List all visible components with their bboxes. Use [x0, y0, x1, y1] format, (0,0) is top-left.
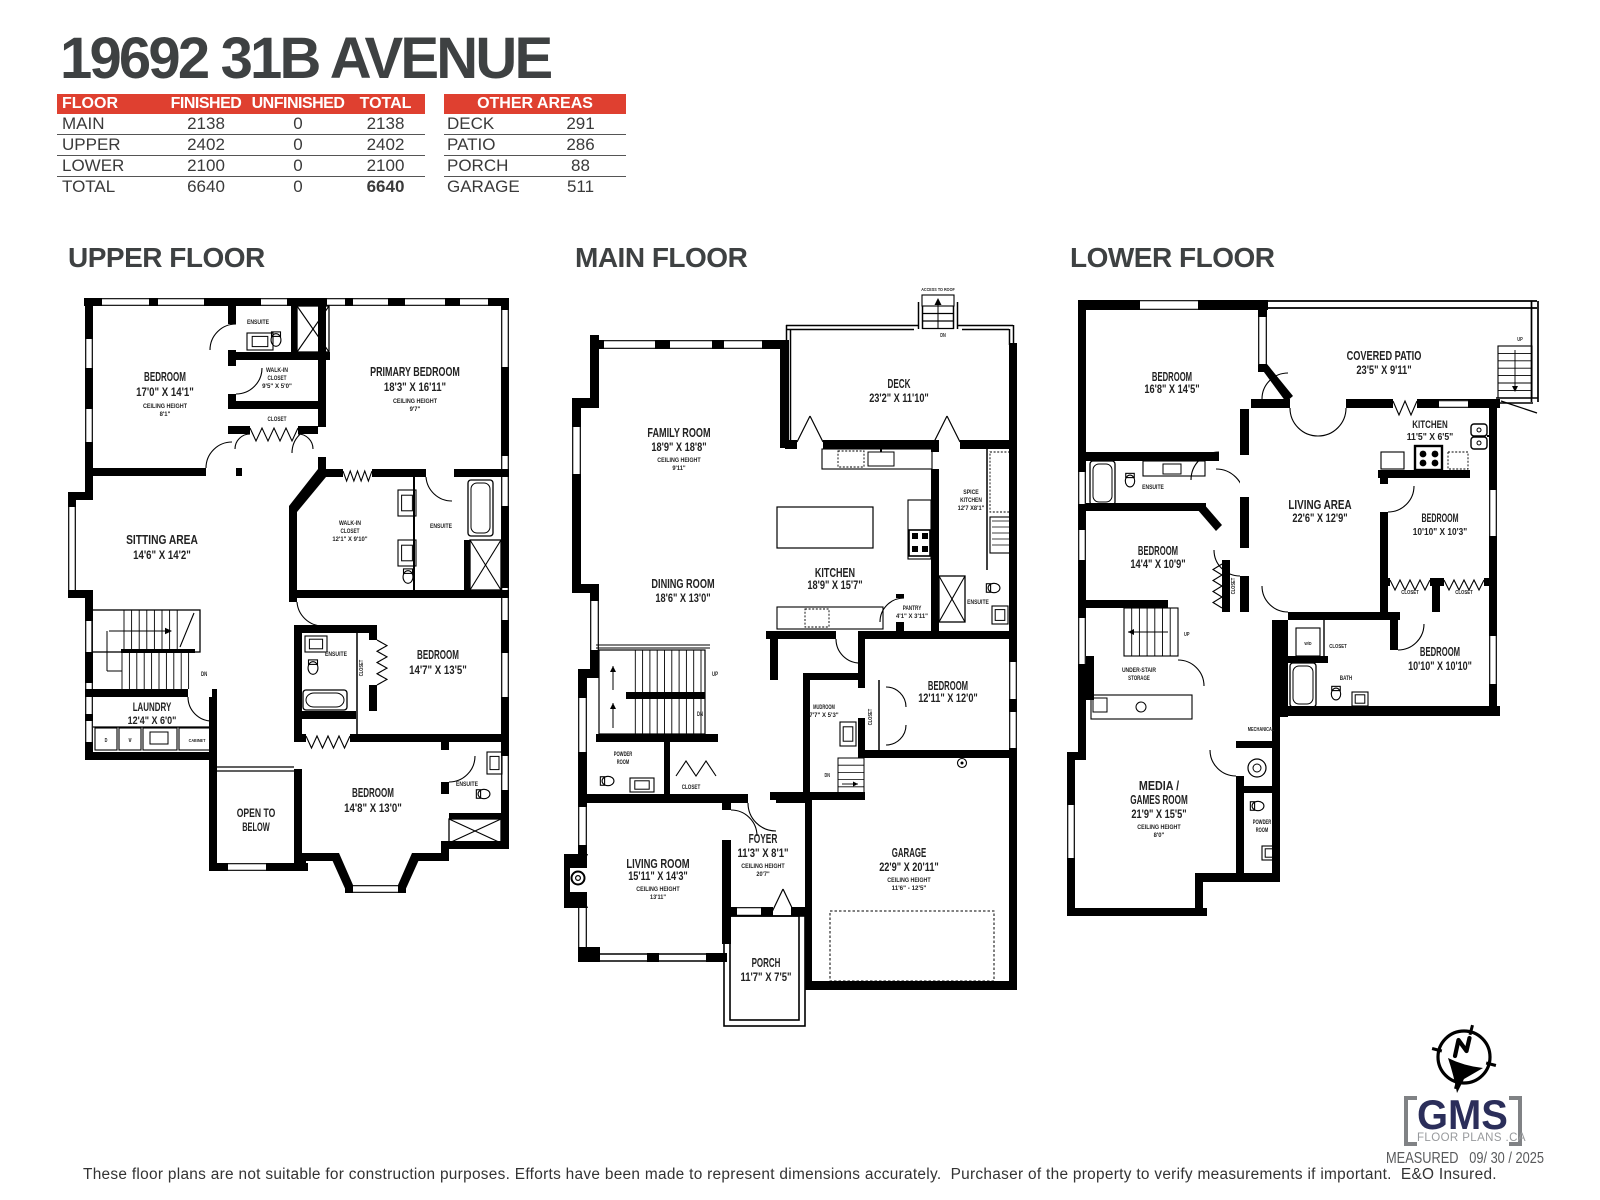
svg-text:CEILING HEIGHT: CEILING HEIGHT — [657, 457, 701, 464]
svg-text:LIVING AREA: LIVING AREA — [1288, 498, 1351, 512]
svg-text:W: W — [129, 738, 132, 744]
svg-text:DN: DN — [697, 712, 703, 718]
svg-text:D: D — [105, 738, 108, 744]
svg-text:13'11": 13'11" — [650, 894, 666, 901]
svg-text:BEDROOM: BEDROOM — [1138, 544, 1178, 558]
svg-text:CLOSET: CLOSET — [341, 528, 360, 535]
svg-text:FOYER: FOYER — [749, 832, 778, 846]
svg-text:CLOSET: CLOSET — [268, 416, 287, 423]
svg-text:PRIMARY BEDROOM: PRIMARY BEDROOM — [370, 364, 460, 379]
svg-text:CABINET: CABINET — [189, 738, 206, 744]
svg-text:18'6" X 13'0": 18'6" X 13'0" — [655, 593, 710, 605]
svg-text:12'7 X8'1": 12'7 X8'1" — [958, 505, 985, 512]
svg-text:PORCH: PORCH — [752, 956, 781, 970]
svg-text:14'7" X 13'5": 14'7" X 13'5" — [409, 663, 467, 677]
svg-text:DINING ROOM: DINING ROOM — [651, 577, 714, 591]
svg-text:BEDROOM: BEDROOM — [1152, 370, 1192, 384]
svg-text:MECHANICAL: MECHANICAL — [1248, 727, 1275, 733]
svg-text:12'4" X 6'0": 12'4" X 6'0" — [128, 715, 177, 727]
svg-text:BELOW: BELOW — [242, 820, 270, 834]
svg-text:4'1" X 3'11": 4'1" X 3'11" — [896, 613, 928, 620]
svg-text:BEDROOM: BEDROOM — [1420, 645, 1460, 659]
svg-text:CLOSET: CLOSET — [1329, 644, 1347, 650]
svg-text:UP: UP — [712, 672, 718, 678]
svg-text:CEILING HEIGHT: CEILING HEIGHT — [143, 403, 187, 410]
svg-text:ENSUITE: ENSUITE — [967, 599, 989, 606]
svg-text:WALK-IN: WALK-IN — [266, 367, 288, 374]
svg-text:GARAGE: GARAGE — [892, 846, 927, 860]
svg-text:POWDER: POWDER — [614, 751, 633, 758]
svg-text:10'10" X 10'10": 10'10" X 10'10" — [1408, 661, 1472, 673]
svg-text:14'6" X 14'2": 14'6" X 14'2" — [133, 548, 191, 562]
svg-text:DECK: DECK — [888, 377, 911, 391]
svg-text:DN: DN — [825, 773, 831, 779]
svg-text:POWDER: POWDER — [1253, 819, 1272, 826]
svg-text:ROOM: ROOM — [1256, 827, 1268, 834]
svg-text:SPICE: SPICE — [963, 489, 979, 496]
svg-text:BEDROOM: BEDROOM — [144, 369, 186, 384]
svg-text:DN: DN — [201, 671, 208, 678]
svg-text:GAMES ROOM: GAMES ROOM — [1130, 793, 1188, 807]
svg-text:20'7": 20'7" — [756, 871, 769, 878]
svg-text:ROOM: ROOM — [617, 759, 629, 766]
svg-text:WALK-IN: WALK-IN — [339, 520, 361, 527]
svg-text:11'3" X 8'1": 11'3" X 8'1" — [737, 848, 788, 860]
svg-text:18'3" X 16'11": 18'3" X 16'11" — [384, 380, 446, 394]
svg-text:ENSUITE: ENSUITE — [430, 523, 452, 530]
svg-text:LAUNDRY: LAUNDRY — [133, 700, 172, 714]
svg-text:UNDER-STAIR: UNDER-STAIR — [1122, 667, 1157, 674]
svg-text:12'1" X 9'10": 12'1" X 9'10" — [332, 536, 367, 543]
svg-text:CLOSET: CLOSET — [682, 784, 701, 791]
svg-text:MEDIA /: MEDIA / — [1139, 779, 1180, 793]
svg-text:DN: DN — [940, 333, 946, 339]
svg-text:15'11" X 14'3": 15'11" X 14'3" — [628, 871, 688, 883]
svg-text:UP: UP — [1184, 632, 1190, 638]
svg-text:11'7" X 7'5": 11'7" X 7'5" — [740, 972, 791, 984]
svg-text:CLOSET: CLOSET — [1231, 577, 1237, 594]
svg-text:ENSUITE: ENSUITE — [247, 319, 269, 326]
svg-text:BEDROOM: BEDROOM — [417, 647, 459, 662]
svg-text:BEDROOM: BEDROOM — [1422, 513, 1459, 525]
svg-text:9'5" X 5'0": 9'5" X 5'0" — [262, 383, 292, 390]
svg-text:9'7": 9'7" — [410, 406, 421, 413]
svg-text:CLOSET: CLOSET — [1455, 590, 1473, 596]
svg-text:OPEN TO: OPEN TO — [237, 806, 276, 820]
svg-text:8'0": 8'0" — [1154, 832, 1165, 839]
svg-text:18'9" X 15'7": 18'9" X 15'7" — [807, 580, 862, 592]
svg-text:18'9" X 18'8": 18'9" X 18'8" — [651, 442, 706, 454]
svg-text:11'5" X 6'5": 11'5" X 6'5" — [1407, 431, 1454, 443]
svg-text:CLOSET: CLOSET — [1401, 590, 1419, 596]
svg-text:8'1": 8'1" — [160, 411, 171, 418]
svg-text:BATH: BATH — [1340, 675, 1353, 682]
svg-text:CEILING HEIGHT: CEILING HEIGHT — [1137, 824, 1181, 831]
svg-text:UP: UP — [1517, 337, 1523, 343]
svg-text:11'6" - 12'5": 11'6" - 12'5" — [892, 885, 927, 892]
svg-text:STORAGE: STORAGE — [1128, 675, 1150, 682]
svg-text:ENSUITE: ENSUITE — [325, 651, 347, 658]
svg-text:CEILING HEIGHT: CEILING HEIGHT — [887, 877, 931, 884]
svg-text:23'5" X 9'11": 23'5" X 9'11" — [1356, 365, 1411, 377]
svg-text:SITTING AREA: SITTING AREA — [126, 532, 198, 547]
svg-text:10'10" X 10'3": 10'10" X 10'3" — [1413, 526, 1467, 538]
svg-text:CEILING HEIGHT: CEILING HEIGHT — [636, 886, 680, 893]
svg-text:BEDROOM: BEDROOM — [352, 785, 394, 800]
svg-text:7'7" X 5'3": 7'7" X 5'3" — [809, 712, 838, 719]
svg-text:FAMILY ROOM: FAMILY ROOM — [647, 426, 710, 440]
svg-text:22'9" X 20'11": 22'9" X 20'11" — [879, 862, 939, 874]
svg-text:CLOSET: CLOSET — [359, 659, 365, 676]
svg-text:KITCHEN: KITCHEN — [1412, 419, 1447, 431]
svg-text:14'8" X 13'0": 14'8" X 13'0" — [344, 801, 402, 815]
svg-text:BEDROOM: BEDROOM — [928, 679, 968, 693]
svg-text:12'11" X 12'0": 12'11" X 12'0" — [918, 693, 978, 705]
svg-text:ENSUITE: ENSUITE — [1142, 484, 1164, 491]
svg-text:PANTRY: PANTRY — [903, 605, 922, 612]
svg-text:CLOSET: CLOSET — [868, 708, 874, 725]
svg-text:23'2" X 11'10": 23'2" X 11'10" — [869, 393, 929, 405]
svg-text:ACCESS TO ROOF: ACCESS TO ROOF — [921, 287, 955, 293]
svg-text:KITCHEN: KITCHEN — [960, 497, 982, 504]
svg-text:22'6" X 12'9": 22'6" X 12'9" — [1292, 513, 1347, 525]
svg-text:W/D: W/D — [1304, 641, 1312, 647]
svg-text:CLOSET: CLOSET — [268, 375, 287, 382]
svg-text:17'0" X 14'1": 17'0" X 14'1" — [136, 385, 194, 399]
svg-text:21'9" X 15'5": 21'9" X 15'5" — [1131, 809, 1186, 821]
svg-text:MUDROOM: MUDROOM — [813, 704, 835, 711]
svg-text:COVERED PATIO: COVERED PATIO — [1347, 349, 1422, 363]
svg-text:14'4" X 10'9": 14'4" X 10'9" — [1130, 559, 1185, 571]
svg-text:CEILING HEIGHT: CEILING HEIGHT — [393, 398, 437, 405]
svg-text:LIVING ROOM: LIVING ROOM — [626, 857, 689, 871]
svg-text:ENSUITE: ENSUITE — [456, 781, 478, 788]
svg-text:16'8" X 14'5": 16'8" X 14'5" — [1144, 384, 1199, 396]
svg-text:CEILING HEIGHT: CEILING HEIGHT — [741, 863, 785, 870]
svg-text:KITCHEN: KITCHEN — [815, 566, 855, 580]
svg-text:9'11": 9'11" — [672, 465, 685, 472]
